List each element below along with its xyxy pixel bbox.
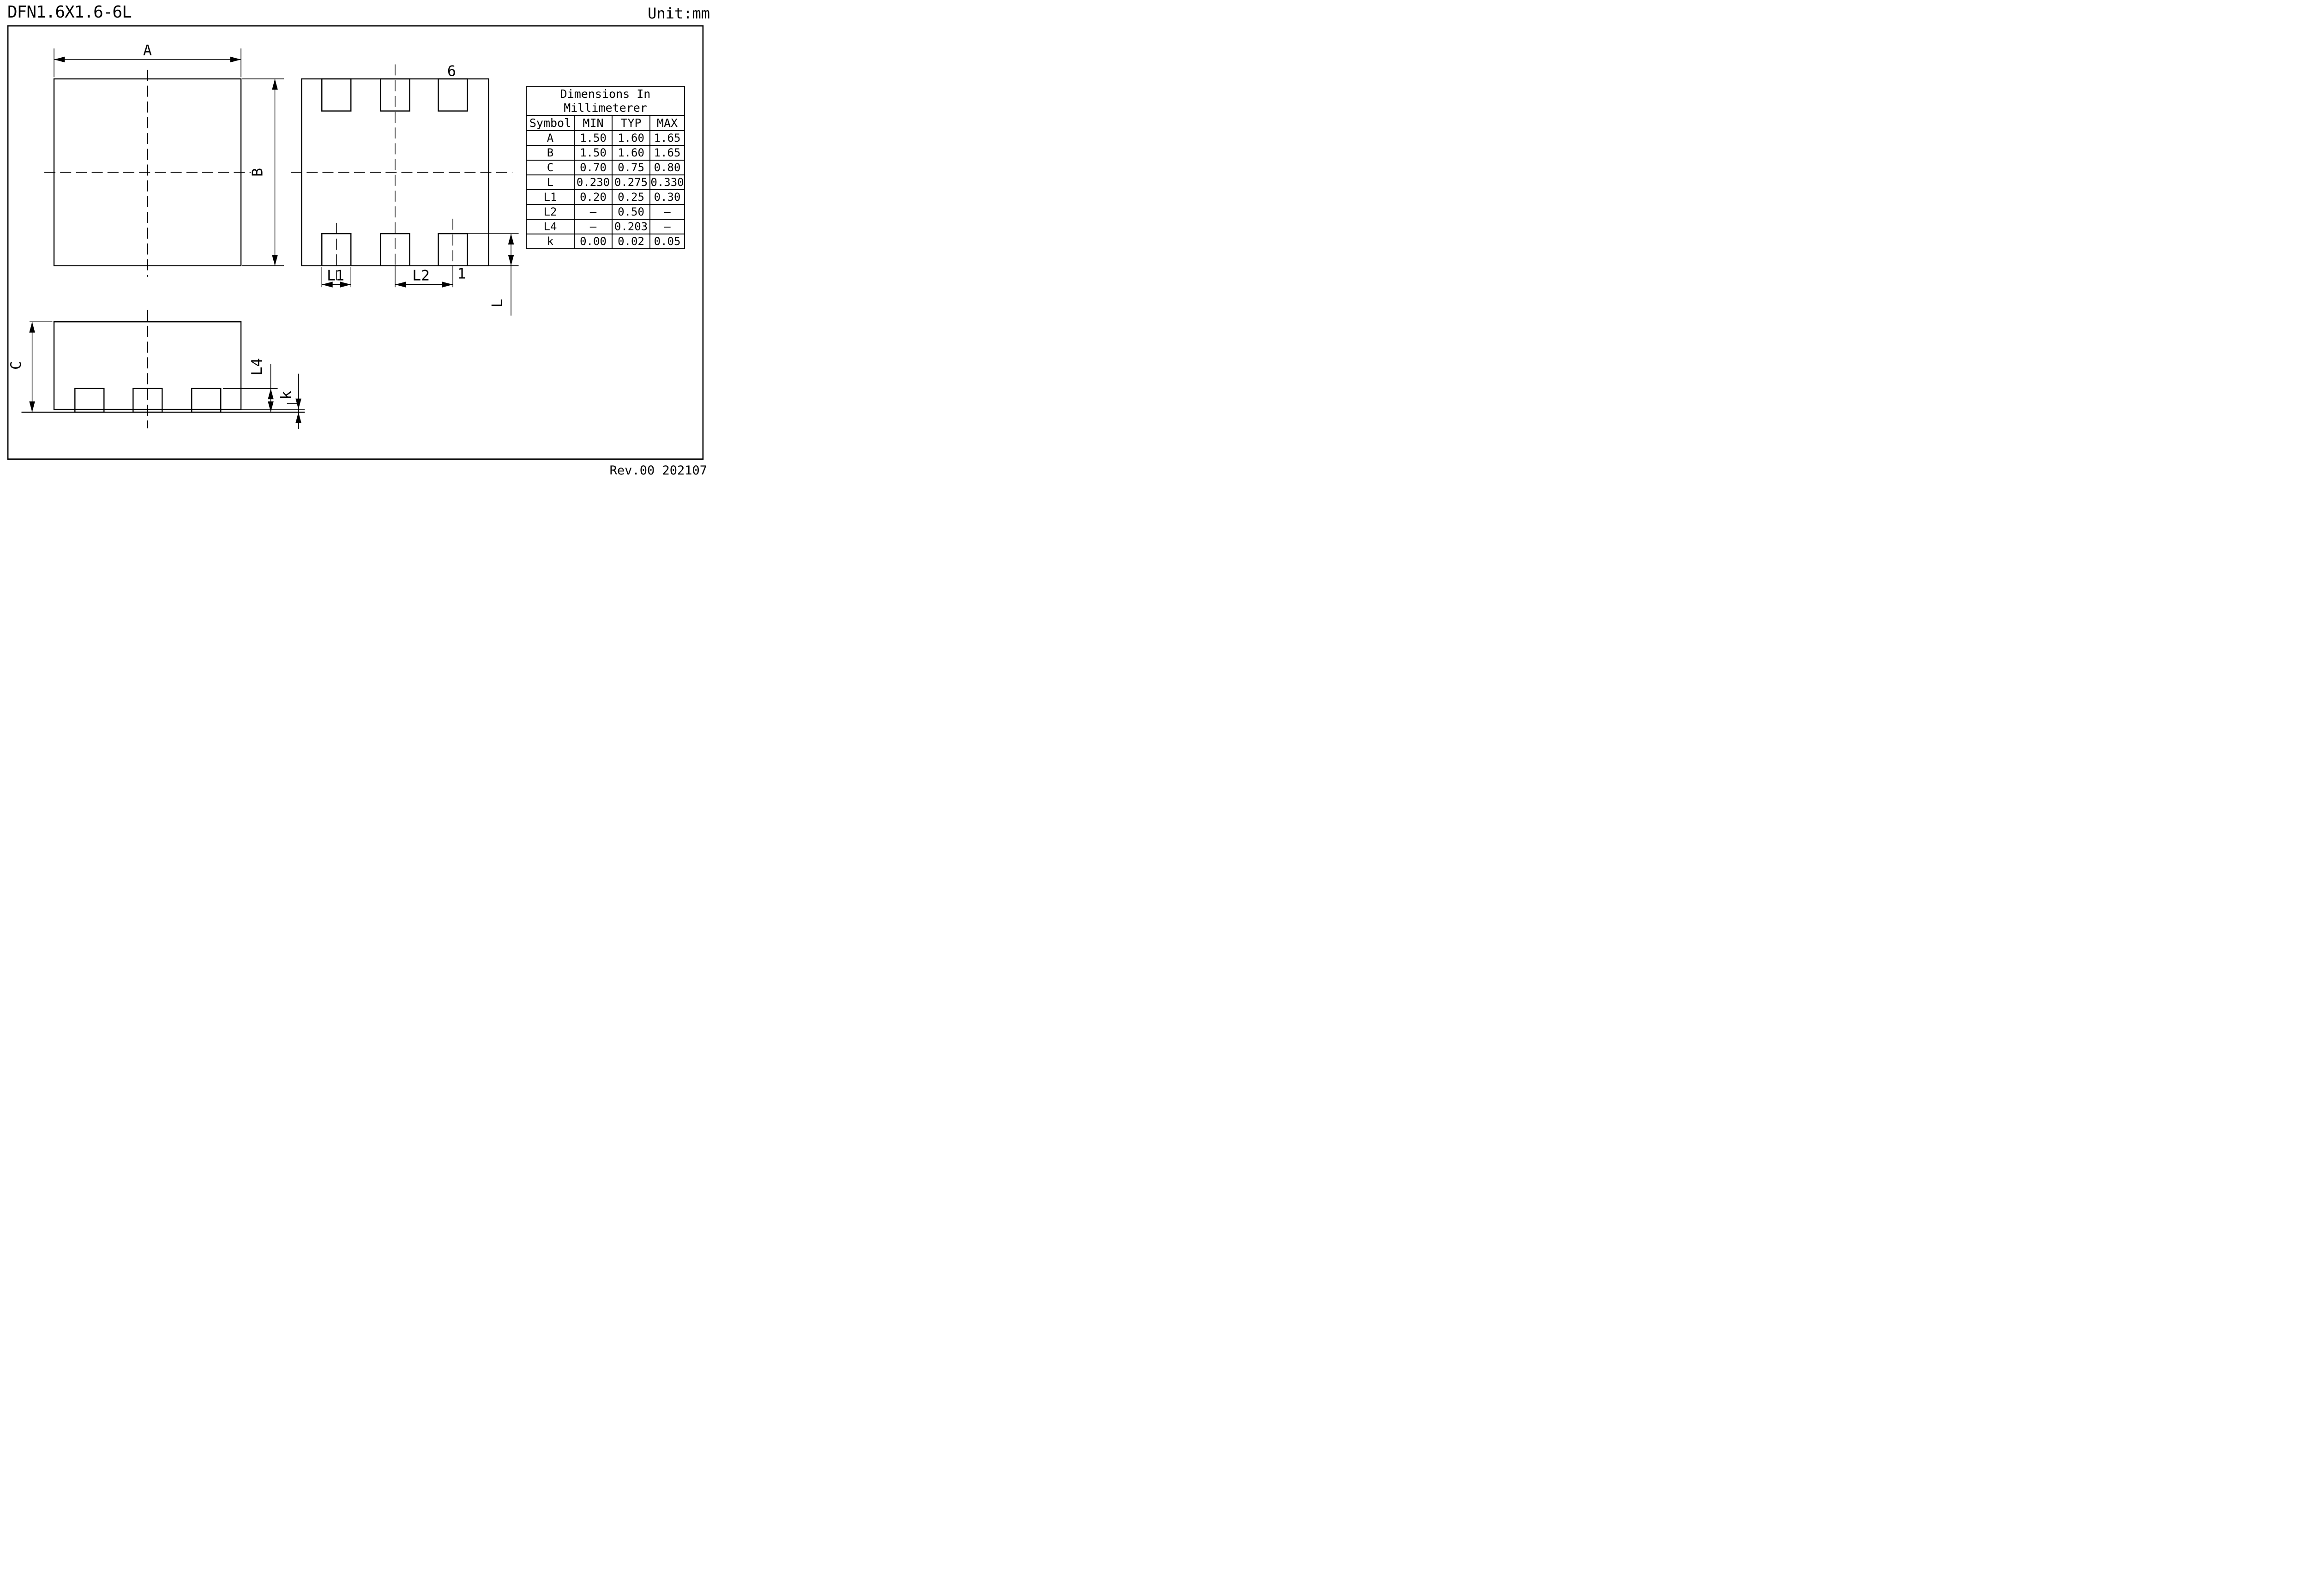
dim-k-arrowhead-up — [295, 412, 301, 423]
bottom-view: 6 1 L1 L2 L — [291, 63, 519, 315]
cell-max: 1.65 — [650, 131, 685, 145]
table-row: C 0.70 0.75 0.80 — [526, 160, 685, 175]
cell-min: – — [574, 219, 612, 234]
column-header-typ: TYP — [612, 115, 650, 131]
dim-c-arrowhead-top — [29, 322, 35, 332]
table-row: B 1.50 1.60 1.65 — [526, 145, 685, 160]
dim-l2-label: L2 — [412, 267, 430, 284]
cell-symbol: C — [526, 160, 574, 175]
dim-l2-arrowhead-left — [395, 282, 406, 288]
table-row: k 0.00 0.02 0.05 — [526, 234, 685, 249]
pad-top-left — [322, 79, 351, 111]
dim-c-arrowhead-bottom — [29, 402, 35, 412]
dim-l-arrowhead-bottom — [508, 255, 514, 265]
cell-symbol: L4 — [526, 219, 574, 234]
cell-max: 0.330 — [650, 175, 685, 190]
dim-l4-label: L4 — [249, 358, 265, 376]
table-row: L 0.230 0.275 0.330 — [526, 175, 685, 190]
package-drawing-page: DFN1.6X1.6-6L Unit:mm Rev.00 202107 A B — [0, 0, 711, 479]
cell-max: 0.30 — [650, 190, 685, 204]
dim-a-arrowhead-left — [54, 57, 65, 63]
column-header-symbol: Symbol — [526, 115, 574, 131]
dim-l-arrowhead-top — [508, 234, 514, 244]
dimensions-table-header-row: Symbol MIN TYP MAX — [526, 115, 685, 131]
column-header-min: MIN — [574, 115, 612, 131]
cell-typ: 0.25 — [612, 190, 650, 204]
dimensions-table-title: Dimensions In Millimeterer — [526, 87, 685, 115]
cell-typ: 0.02 — [612, 234, 650, 249]
cell-symbol: L1 — [526, 190, 574, 204]
cell-max: – — [650, 204, 685, 219]
cell-symbol: k — [526, 234, 574, 249]
pin6-label: 6 — [447, 63, 456, 79]
dim-l4-arrowhead-top — [268, 389, 274, 399]
dim-b-arrowhead-bottom — [272, 255, 278, 265]
cell-typ: 0.275 — [612, 175, 650, 190]
table-row: A 1.50 1.60 1.65 — [526, 131, 685, 145]
side-pad-right — [192, 389, 221, 412]
pin1-label: 1 — [457, 265, 466, 282]
cell-min: 0.70 — [574, 160, 612, 175]
dim-b-arrowhead-top — [272, 79, 278, 90]
top-view: A B — [44, 42, 284, 276]
cell-symbol: L — [526, 175, 574, 190]
cell-max: 0.80 — [650, 160, 685, 175]
cell-min: 0.00 — [574, 234, 612, 249]
table-row: L2 – 0.50 – — [526, 204, 685, 219]
dim-k-arrowhead-down — [295, 399, 301, 409]
dim-l-label: L — [489, 299, 506, 307]
table-row: L1 0.20 0.25 0.30 — [526, 190, 685, 204]
cell-max: 0.05 — [650, 234, 685, 249]
dim-b-label: B — [250, 168, 266, 177]
cell-symbol: B — [526, 145, 574, 160]
dim-k-label: k — [278, 391, 295, 400]
cell-min: – — [574, 204, 612, 219]
cell-min: 1.50 — [574, 145, 612, 160]
column-header-max: MAX — [650, 115, 685, 131]
dimensions-table: Dimensions In Millimeterer Symbol MIN TY… — [526, 86, 685, 249]
dim-a-arrowhead-right — [230, 57, 241, 63]
cell-typ: 1.60 — [612, 145, 650, 160]
side-pad-left — [75, 389, 104, 412]
dim-c-label: C — [8, 361, 24, 370]
cell-typ: 0.50 — [612, 204, 650, 219]
cell-typ: 0.203 — [612, 219, 650, 234]
dimensions-table-title-row: Dimensions In Millimeterer — [526, 87, 685, 115]
cell-max: – — [650, 219, 685, 234]
dim-l1-label: L1 — [327, 267, 344, 284]
cell-min: 0.230 — [574, 175, 612, 190]
dim-l2-arrowhead-right — [442, 282, 453, 288]
pad-top-right — [439, 79, 468, 111]
dim-a-label: A — [143, 42, 152, 59]
cell-symbol: L2 — [526, 204, 574, 219]
side-view: C L4 k — [8, 310, 305, 429]
cell-min: 0.20 — [574, 190, 612, 204]
cell-typ: 1.60 — [612, 131, 650, 145]
cell-min: 1.50 — [574, 131, 612, 145]
cell-symbol: A — [526, 131, 574, 145]
cell-typ: 0.75 — [612, 160, 650, 175]
dim-l4-arrowhead-bottom — [268, 402, 274, 412]
table-row: L4 – 0.203 – — [526, 219, 685, 234]
cell-max: 1.65 — [650, 145, 685, 160]
